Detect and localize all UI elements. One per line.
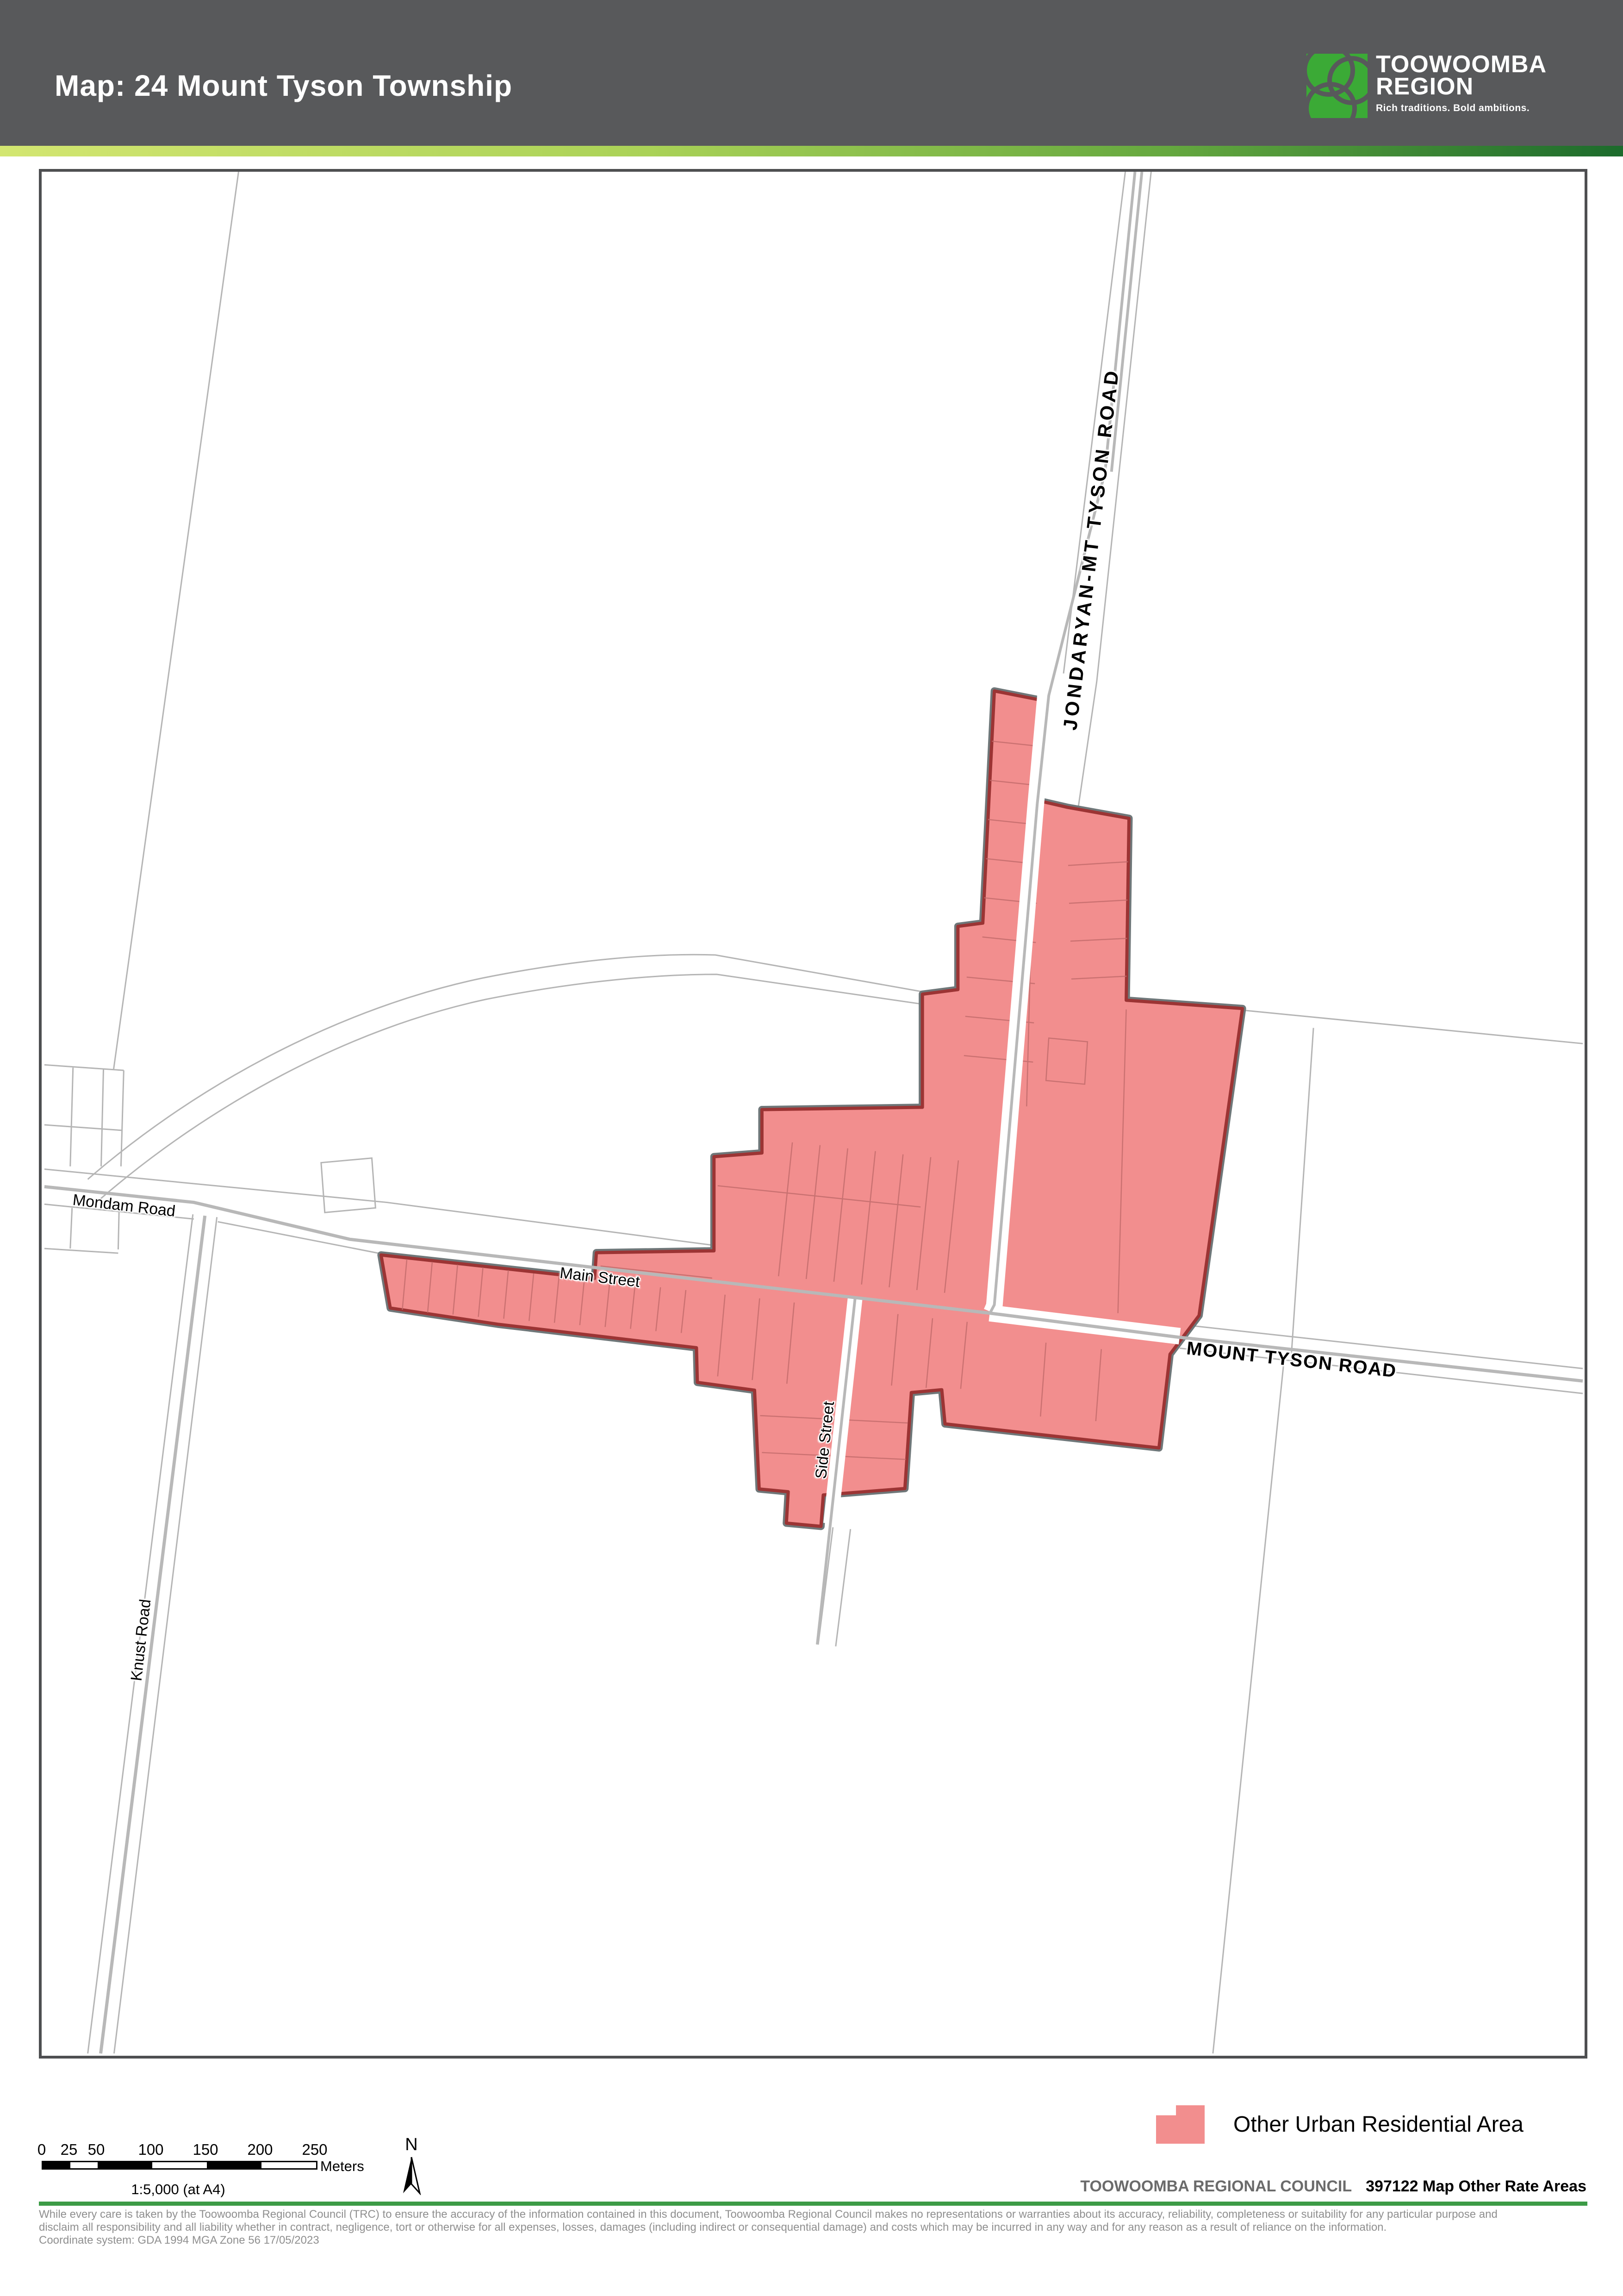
scale-tick-150: 150	[193, 2141, 218, 2159]
logo-tagline: Rich traditions. Bold ambitions.	[1376, 103, 1547, 114]
footer-council: TOOWOOMBA REGIONAL COUNCIL	[1080, 2177, 1352, 2196]
logo-line2: REGION	[1376, 76, 1547, 98]
logo-icon-graphic	[1306, 54, 1368, 118]
footer-attribution: TOOWOOMBA REGIONAL COUNCIL 397122 Map Ot…	[1080, 2177, 1586, 2196]
scale-seg	[43, 2162, 70, 2168]
page: Map: 24 Mount Tyson Township TOOWOOMBA R…	[0, 0, 1623, 2296]
other-urban-residential-area	[381, 691, 1242, 1527]
map-frame: Mondam Road Main Street Side Street Knus…	[39, 169, 1587, 2059]
toowoomba-region-logo: TOOWOOMBA REGION Rich traditions. Bold a…	[1306, 54, 1547, 118]
legend-label: Other Urban Residential Area	[1233, 2112, 1524, 2137]
legend-swatch-other-urban-residential	[1156, 2105, 1205, 2144]
scale-unit-label: Meters	[320, 2158, 364, 2175]
footer-map-reference: 397122 Map Other Rate Areas	[1366, 2177, 1586, 2196]
scale-tick-25: 25	[61, 2141, 78, 2159]
scale-seg	[261, 2162, 316, 2168]
disclaimer-line-2: disclaim all responsibility and all liab…	[39, 2221, 1387, 2234]
north-arrow-icon	[397, 2156, 426, 2195]
scale-seg	[98, 2162, 152, 2168]
legend: Other Urban Residential Area	[1156, 2105, 1524, 2144]
scale-tick-200: 200	[247, 2141, 273, 2159]
footer-divider	[39, 2202, 1587, 2206]
map-canvas	[42, 172, 1585, 2056]
scale-tick-0: 0	[37, 2141, 46, 2159]
logo-flower-icon	[1306, 54, 1368, 118]
disclaimer-line-1: While every care is taken by the Toowoom…	[39, 2208, 1498, 2221]
scale-tick-100: 100	[138, 2141, 163, 2159]
header-bar: Map: 24 Mount Tyson Township TOOWOOMBA R…	[0, 0, 1623, 146]
logo-text: TOOWOOMBA REGION Rich traditions. Bold a…	[1376, 54, 1547, 118]
header-accent-bar	[0, 146, 1623, 156]
scale-ratio-label: 1:5,000 (at A4)	[131, 2181, 225, 2198]
logo-line1: TOOWOOMBA	[1376, 54, 1547, 76]
north-label: N	[405, 2135, 417, 2155]
scale-bar	[42, 2161, 317, 2170]
scale-seg	[152, 2162, 207, 2168]
scale-tick-250: 250	[302, 2141, 327, 2159]
scale-tick-50: 50	[88, 2141, 105, 2159]
coordinate-system-line: Coordinate system: GDA 1994 MGA Zone 56 …	[39, 2234, 319, 2247]
scale-seg	[207, 2162, 261, 2168]
scale-seg	[70, 2162, 98, 2168]
page-title: Map: 24 Mount Tyson Township	[55, 69, 512, 103]
